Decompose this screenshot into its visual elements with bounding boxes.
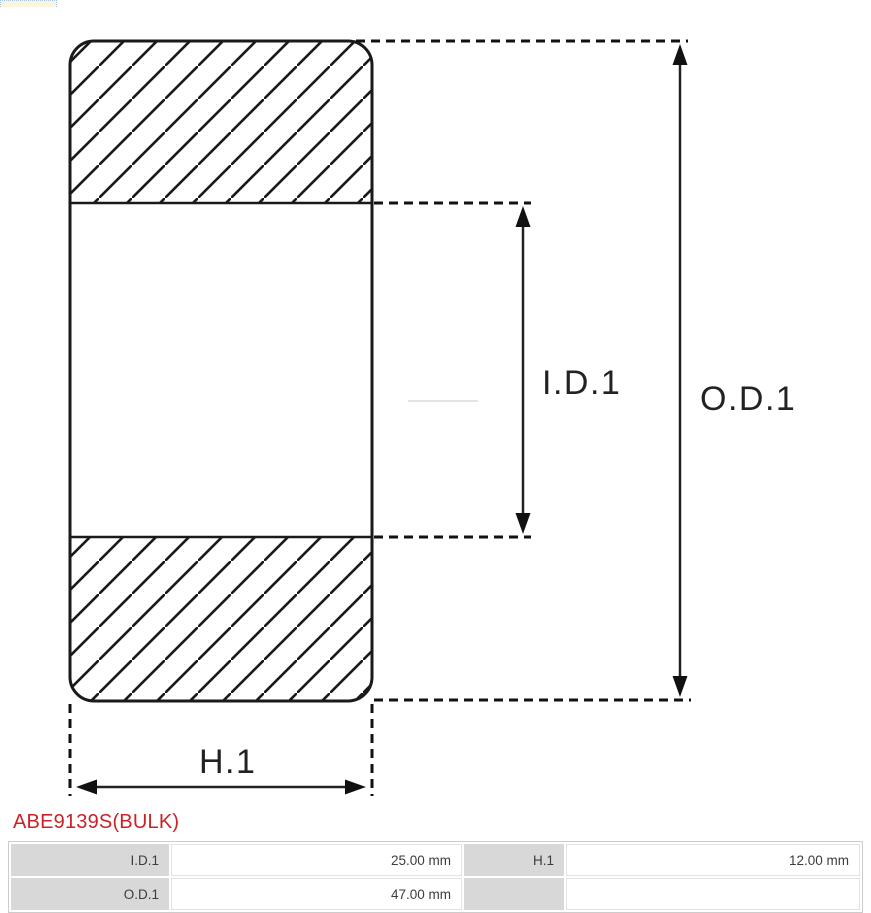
spec-table: I.D.1 25.00 mm H.1 12.00 mm O.D.1 47.00 … <box>8 841 863 913</box>
spec-value-h1: 12.00 mm <box>566 844 860 876</box>
spec-value-id1: 25.00 mm <box>171 844 462 876</box>
spec-row-1: I.D.1 25.00 mm H.1 12.00 mm <box>11 844 860 876</box>
outer-race-hatch-top <box>70 41 372 203</box>
od1-label: O.D.1 <box>700 380 796 419</box>
spec-label-od1: O.D.1 <box>11 878 169 910</box>
spec-value-empty <box>566 878 860 910</box>
id1-dimension-arrow <box>516 206 531 534</box>
product-drawing-page: I.D.1 O.D.1 H.1 ABE9139S(BULK) I.D.1 25.… <box>0 0 871 913</box>
bearing-cross-section <box>70 41 478 701</box>
spec-label-id1: I.D.1 <box>11 844 169 876</box>
id1-label: I.D.1 <box>542 364 621 403</box>
od1-dimension-arrow <box>673 44 688 697</box>
spec-label-empty <box>464 878 564 910</box>
spec-value-od1: 47.00 mm <box>171 878 462 910</box>
spec-label-h1: H.1 <box>464 844 564 876</box>
spec-row-2: O.D.1 47.00 mm <box>11 878 860 910</box>
outer-race-hatch-bottom <box>70 537 372 701</box>
product-code[interactable]: ABE9139S(BULK) <box>13 811 179 834</box>
h1-label: H.1 <box>199 743 256 782</box>
